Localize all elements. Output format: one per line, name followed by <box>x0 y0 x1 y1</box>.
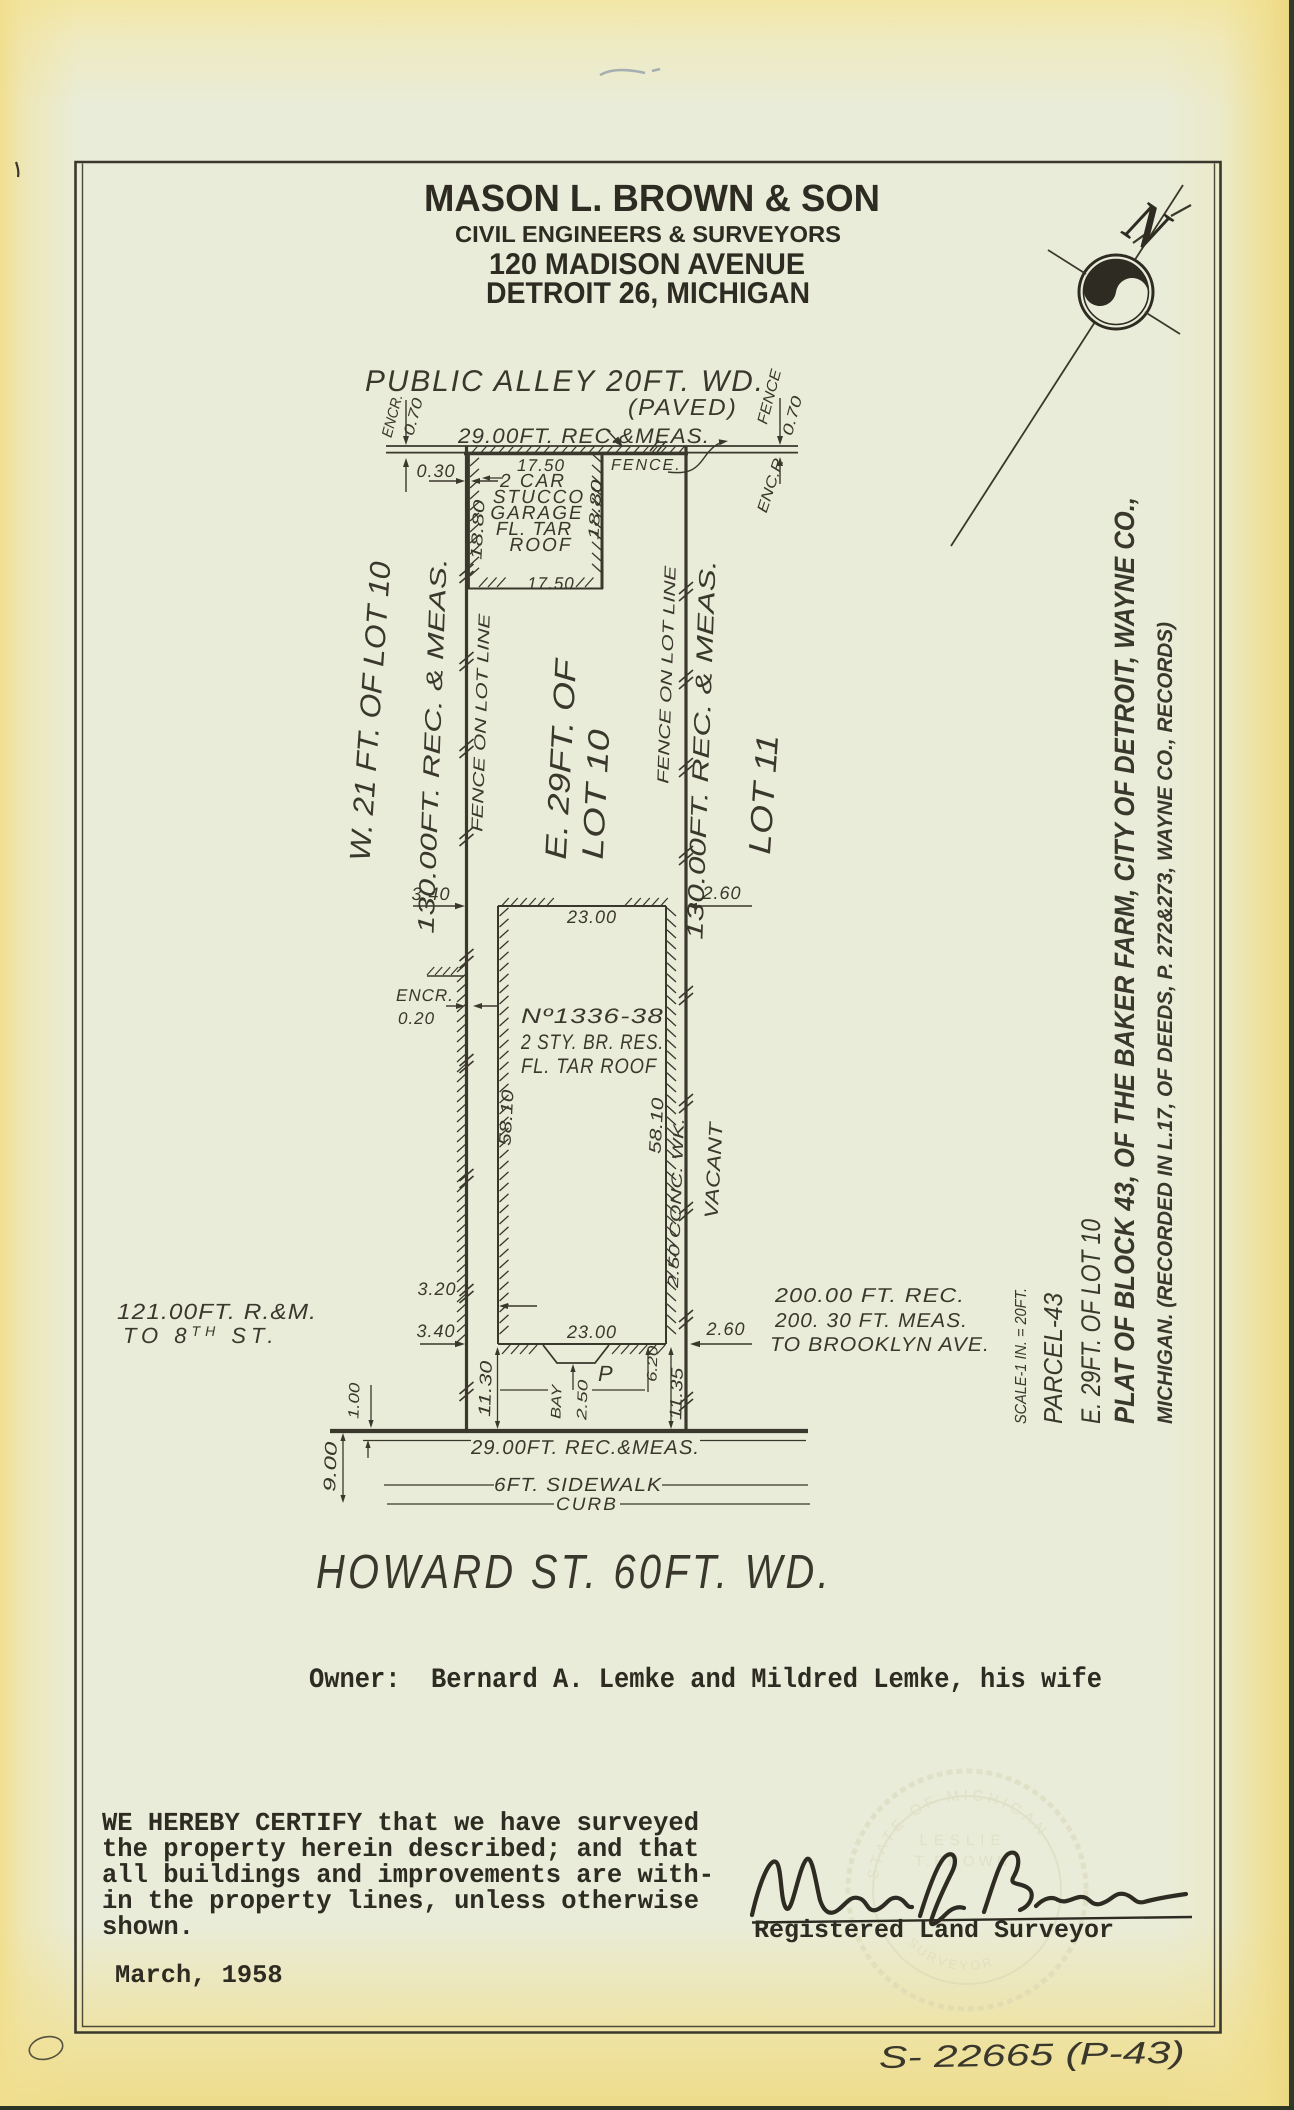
svg-text:3.20: 3.20 <box>417 1279 456 1299</box>
svg-text:Nº1336-38: Nº1336-38 <box>521 1005 664 1028</box>
svg-text:W. 21 FT. OF LOT 10: W. 21 FT. OF LOT 10 <box>345 561 398 863</box>
svg-text:3.40: 3.40 <box>416 1321 455 1341</box>
svg-text:Owner: Bernard A. Lemke and M: Owner: Bernard A. Lemke and Mildred Lemk… <box>309 1665 1102 1696</box>
svg-text:FENCE.: FENCE. <box>611 457 682 474</box>
svg-text:CURB: CURB <box>556 1494 618 1514</box>
svg-text:6FT. SIDEWALK: 6FT. SIDEWALK <box>494 1475 662 1496</box>
svg-text:200.00 FT. REC.: 200.00 FT. REC. <box>774 1285 965 1307</box>
svg-text:0.30: 0.30 <box>416 461 455 481</box>
svg-text:TO 8TH ST.: TO 8TH ST. <box>123 1323 279 1348</box>
svg-text:FENCE ON LOT LINE: FENCE ON LOT LINE <box>469 613 494 832</box>
svg-text:PARCEL-43: PARCEL-43 <box>1038 1292 1068 1424</box>
svg-text:1.00: 1.00 <box>345 1382 363 1419</box>
svg-text:LESLIE: LESLIE <box>920 1832 1007 1849</box>
svg-text:FENCE ON LOT LINE: FENCE ON LOT LINE <box>655 565 680 784</box>
svg-text:HOWARD ST. 60FT. WD.: HOWARD ST. 60FT. WD. <box>316 1546 832 1599</box>
svg-text:ENCR.: ENCR. <box>396 986 454 1005</box>
svg-text:FL. TAR ROOF: FL. TAR ROOF <box>521 1055 657 1078</box>
svg-text:29.00FT. REC.&MEAS.: 29.00FT. REC.&MEAS. <box>457 425 710 448</box>
svg-text:11.30: 11.30 <box>475 1360 496 1417</box>
svg-text:18.80: 18.80 <box>468 499 488 560</box>
svg-text:58.10: 58.10 <box>646 1097 668 1155</box>
svg-text:BAY: BAY <box>547 1382 564 1419</box>
svg-text:18.80: 18.80 <box>585 478 605 540</box>
svg-text:TO BROOKLYN AVE.: TO BROOKLYN AVE. <box>770 1334 990 1356</box>
svg-text:T.BROWN: T.BROWN <box>914 1853 1011 1870</box>
svg-text:ENC.R: ENC.R <box>754 456 788 515</box>
svg-text:SCALE-1 IN. = 20FT.: SCALE-1 IN. = 20FT. <box>1013 1288 1030 1424</box>
svg-text:ROOF: ROOF <box>510 535 573 556</box>
svg-text:MASON L. BROWN & SON: MASON L. BROWN & SON <box>424 178 880 220</box>
svg-text:130.00FT. REC. & MEAS.: 130.00FT. REC. & MEAS. <box>412 557 451 934</box>
svg-text:2 STY. BR. RES.: 2 STY. BR. RES. <box>520 1031 664 1054</box>
svg-text:shown.: shown. <box>102 1912 194 1942</box>
svg-text:March, 1958: March, 1958 <box>115 1961 283 1990</box>
svg-text:2.50: 2.50 <box>573 1379 590 1421</box>
svg-text:29.00FT. REC.&MEAS.: 29.00FT. REC.&MEAS. <box>470 1437 700 1459</box>
svg-text:23.00: 23.00 <box>566 907 617 927</box>
svg-text:E. 29FT. OF: E. 29FT. OF <box>540 657 584 861</box>
svg-text:17.50: 17.50 <box>527 574 575 593</box>
svg-text:121.00FT. R.&M.: 121.00FT. R.&M. <box>117 1299 317 1324</box>
svg-text:N: N <box>1112 187 1183 266</box>
svg-text:LOT 10: LOT 10 <box>577 728 617 860</box>
svg-text:CIVIL ENGINEERS & SURVEYORS: CIVIL ENGINEERS & SURVEYORS <box>455 221 841 247</box>
svg-text:23.00: 23.00 <box>566 1322 617 1342</box>
svg-text:11.35: 11.35 <box>666 1367 687 1420</box>
svg-text:VACANT: VACANT <box>702 1120 728 1219</box>
svg-text:6.20: 6.20 <box>643 1345 660 1382</box>
svg-text:E. 29FT. OF LOT 10: E. 29FT. OF LOT 10 <box>1076 1219 1106 1424</box>
svg-text:200. 30 FT. MEAS.: 200. 30 FT. MEAS. <box>774 1310 968 1332</box>
svg-text:PLAT OF BLOCK 43, OF THE BAKER: PLAT OF BLOCK 43, OF THE BAKER FARM, CIT… <box>1109 497 1140 1424</box>
svg-text:DETROIT 26, MICHIGAN: DETROIT 26, MICHIGAN <box>486 277 810 310</box>
svg-text:LOT 11: LOT 11 <box>742 733 785 855</box>
svg-text:2.60: 2.60 <box>705 1319 745 1339</box>
svg-text:9.00: 9.00 <box>320 1441 341 1492</box>
svg-text:MICHIGAN. (RECORDED IN L.17, O: MICHIGAN. (RECORDED IN L.17, OF DEEDS, P… <box>1154 622 1177 1424</box>
svg-text:Registered Land Surveyor: Registered Land Surveyor <box>754 1916 1114 1945</box>
svg-text:58.10: 58.10 <box>496 1089 518 1147</box>
svg-text:2.60: 2.60 <box>701 883 741 903</box>
svg-text:P: P <box>598 1361 613 1386</box>
svg-text:3.40: 3.40 <box>411 884 450 904</box>
svg-text:0.70: 0.70 <box>779 393 806 437</box>
svg-text:S- 22665 (P-43): S- 22665 (P-43) <box>879 2035 1186 2075</box>
svg-text:(PAVED): (PAVED) <box>628 394 738 420</box>
svg-text:0.20: 0.20 <box>398 1009 435 1028</box>
